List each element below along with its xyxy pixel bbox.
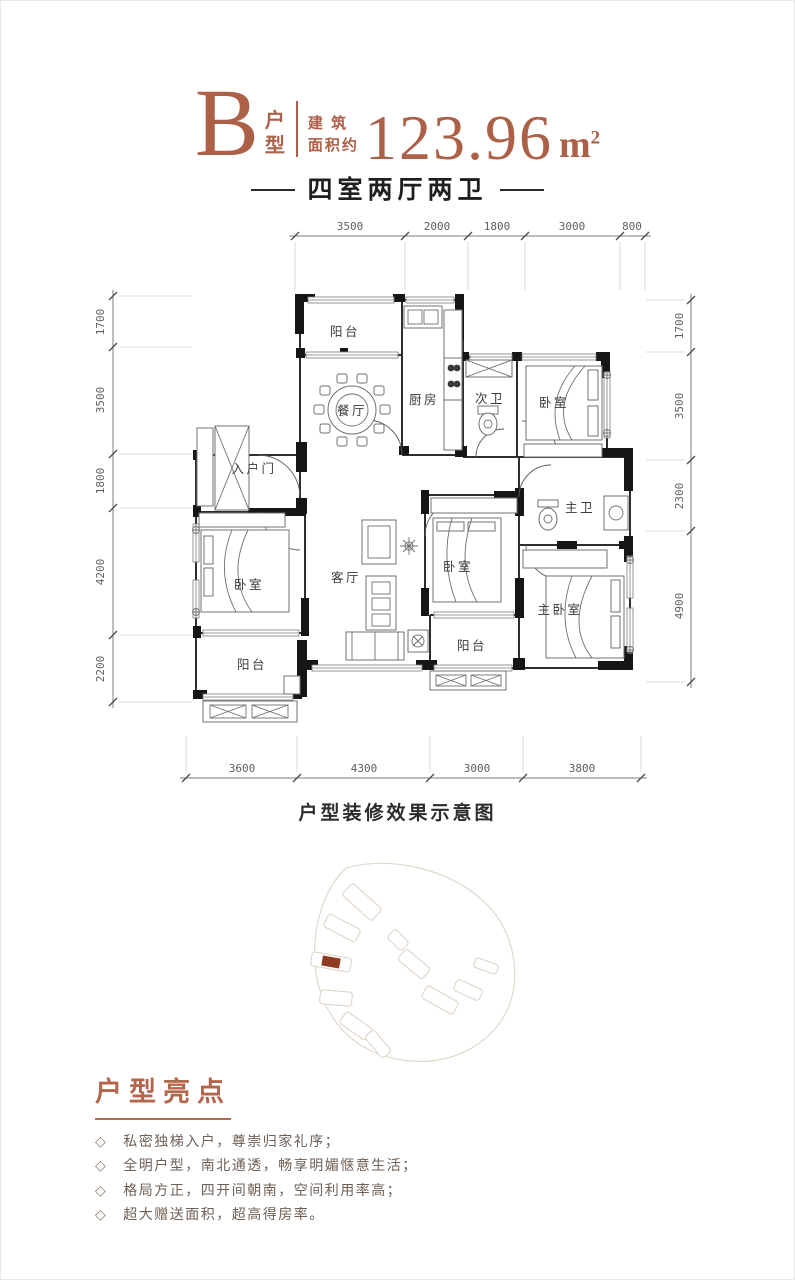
site-buildings xyxy=(310,883,499,1059)
subtitle-dash-left xyxy=(251,189,295,191)
room-label-bath-master: 主卫 xyxy=(565,501,595,515)
dimension-right: 1700 3500 2300 4900 xyxy=(673,294,695,688)
room-label-bedroom-master: 主卧室 xyxy=(537,602,582,617)
dimension-bottom: 3600 4300 3000 3800 xyxy=(180,762,647,782)
dim-top-0: 3500 xyxy=(337,220,364,233)
dim-top-4: 800 xyxy=(622,220,642,233)
dim-right-3: 4900 xyxy=(673,593,686,620)
unit-type-label-bottom: 型 xyxy=(265,134,286,159)
area-prefix-line1: 建 筑 xyxy=(308,113,359,136)
room-label-kitchen: 厨房 xyxy=(409,392,439,407)
dim-top-2: 1800 xyxy=(484,220,511,233)
subtitle-dash-right xyxy=(500,189,544,191)
unit-type-label: 户 型 xyxy=(265,109,286,159)
dimension-top: 3500 2000 1800 3000 800 xyxy=(289,220,651,240)
unit-type-label-top: 户 xyxy=(265,109,286,134)
dim-left-3: 4200 xyxy=(94,559,107,586)
diamond-bullet-icon: ◇ xyxy=(95,1207,107,1222)
header-divider xyxy=(296,101,298,157)
dim-bottom-3: 3800 xyxy=(569,762,596,775)
room-label-bedroom-west: 卧室 xyxy=(234,577,264,592)
site-plan xyxy=(295,848,525,1070)
dimension-left: 1700 3500 1800 4200 2200 xyxy=(94,290,117,708)
kitchen-fixtures xyxy=(404,306,462,450)
highlight-text: 格局方正，四开间朝南，空间利用率高； xyxy=(123,1183,402,1198)
subtitle-text: 四室两厅两卫 xyxy=(307,177,487,204)
highlights-section: 户型亮点 ◇私密独梯入户，尊崇归家礼序； ◇全明户型，南北通透，畅享明媚惬意生活… xyxy=(95,1070,655,1232)
room-label-entrance: 入户门 xyxy=(231,461,276,476)
area-prefix: 建 筑 面积约 xyxy=(308,113,359,158)
diamond-bullet-icon: ◇ xyxy=(95,1158,107,1173)
highlight-item: ◇超大赠送面积，超高得房率。 xyxy=(95,1207,655,1222)
area-unit-exponent: 2 xyxy=(591,128,601,149)
floor-plan-drawing: 3500 2000 1800 3000 800 3600 4300 3000 3… xyxy=(0,210,795,830)
header: B 户 型 建 筑 面积约 123.96 m2 xyxy=(0,84,795,163)
living-furniture xyxy=(346,520,428,660)
area-prefix-line2: 面积约 xyxy=(308,135,359,158)
dim-top-1: 2000 xyxy=(424,220,451,233)
dim-left-0: 1700 xyxy=(94,309,107,336)
room-label-bedroom-mid: 卧室 xyxy=(443,559,473,574)
unit-type-row: B 户 型 建 筑 面积约 123.96 m2 xyxy=(195,84,600,163)
room-label-living: 客厅 xyxy=(331,570,361,585)
highlight-text: 私密独梯入户，尊崇归家礼序； xyxy=(123,1134,340,1149)
site-building-highlighted xyxy=(310,952,352,973)
highlight-text: 全明户型，南北通透，畅享明媚惬意生活； xyxy=(123,1158,418,1173)
dim-bottom-2: 3000 xyxy=(464,762,491,775)
diamond-bullet-icon: ◇ xyxy=(95,1183,107,1198)
floorplan-flyer: B 户 型 建 筑 面积约 123.96 m2 四室两厅两卫 xyxy=(0,0,795,1280)
dim-right-0: 1700 xyxy=(673,313,686,340)
dim-left-4: 2200 xyxy=(94,656,107,683)
dim-bottom-1: 4300 xyxy=(351,762,378,775)
highlight-text: 超大赠送面积，超高得房率。 xyxy=(123,1207,325,1222)
bedroom-west-furniture xyxy=(199,513,289,612)
room-label-balcony-north: 阳台 xyxy=(330,324,360,339)
layout-subtitle: 四室两厅两卫 xyxy=(0,170,795,206)
unit-type-letter: B xyxy=(195,84,259,163)
bedroom-ne-furniture xyxy=(524,366,602,457)
dim-right-2: 2300 xyxy=(673,483,686,510)
dim-top-3: 3000 xyxy=(559,220,586,233)
dim-left-1: 3500 xyxy=(94,387,107,414)
bedroom-mid-furniture xyxy=(431,498,517,602)
highlight-item: ◇私密独梯入户，尊崇归家礼序； xyxy=(95,1134,655,1149)
diamond-bullet-icon: ◇ xyxy=(95,1134,107,1149)
highlight-item: ◇全明户型，南北通透，畅享明媚惬意生活； xyxy=(95,1158,655,1173)
area-value: 123.96 xyxy=(365,112,553,163)
room-label-balcony-south: 阳台 xyxy=(457,638,487,653)
room-label-balcony-southwest: 阳台 xyxy=(237,657,267,672)
dim-right-1: 3500 xyxy=(673,393,686,420)
area-unit-base: m xyxy=(559,124,591,166)
area-unit: m2 xyxy=(559,130,600,160)
plant-icon xyxy=(400,537,418,555)
room-label-bath-second: 次卫 xyxy=(475,392,505,406)
plan-caption: 户型装修效果示意图 xyxy=(0,798,795,825)
highlight-item: ◇格局方正，四开间朝南，空间利用率高； xyxy=(95,1183,655,1198)
highlights-list: ◇私密独梯入户，尊崇归家礼序； ◇全明户型，南北通透，畅享明媚惬意生活； ◇格局… xyxy=(95,1134,655,1223)
dim-left-2: 1800 xyxy=(94,468,107,495)
room-label-bedroom-ne: 卧室 xyxy=(539,395,569,410)
dim-bottom-0: 3600 xyxy=(229,762,256,775)
room-label-dining: 餐厅 xyxy=(337,403,367,418)
highlights-title: 户型亮点 xyxy=(95,1070,231,1120)
